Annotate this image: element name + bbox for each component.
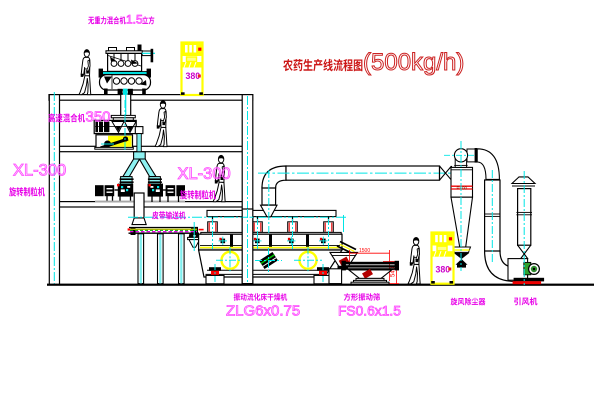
svg-text:350: 350 <box>86 109 111 126</box>
svg-text:FS0.6x1.5: FS0.6x1.5 <box>338 304 401 319</box>
svg-text:(500kg/h): (500kg/h) <box>363 49 464 76</box>
svg-text:1.5: 1.5 <box>126 13 143 27</box>
svg-text:P400: P400 <box>457 185 468 190</box>
svg-text:1500: 1500 <box>359 248 370 254</box>
svg-text:XL-300: XL-300 <box>13 162 66 180</box>
svg-text:380: 380 <box>436 265 451 275</box>
svg-text:ZLG6x0.75: ZLG6x0.75 <box>226 303 300 320</box>
svg-text:XL-300: XL-300 <box>178 165 231 183</box>
